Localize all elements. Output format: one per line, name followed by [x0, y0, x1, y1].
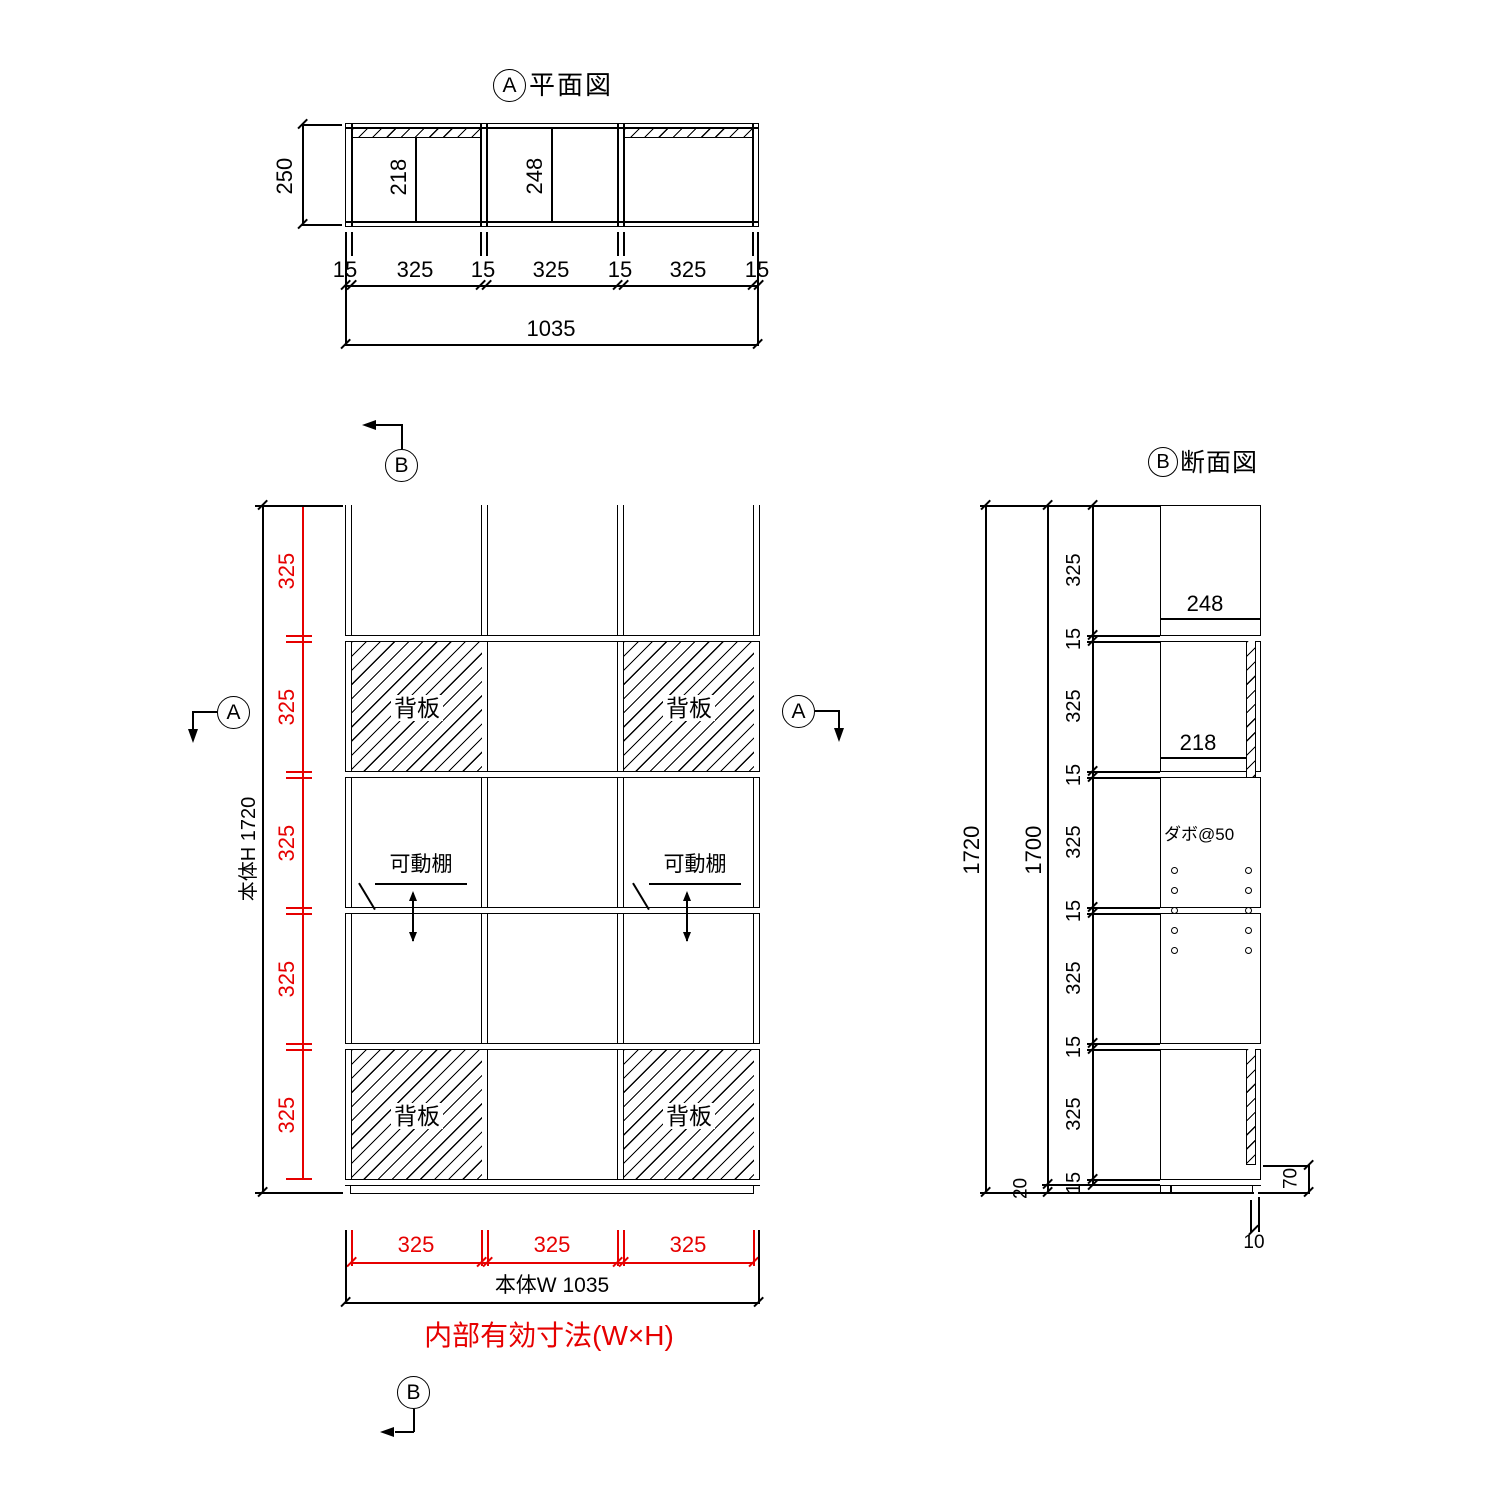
section-dim-218-line [1160, 757, 1246, 759]
front-row-dim: 325 [275, 939, 299, 1019]
plan-ext-line [757, 256, 759, 345]
movable-shelf-label: 可動棚 [650, 853, 740, 877]
section-marker-letter: B [406, 1381, 420, 1405]
front-col-dim-line [351, 1262, 754, 1264]
section-cut-line [838, 710, 840, 728]
plan-total-dim-line [345, 344, 759, 346]
section-chain-dim: 15 [1063, 891, 1085, 931]
plan-view-marker-letter: A [502, 74, 516, 98]
back-panel-label: 背板 [651, 695, 727, 721]
dim-ext-line [980, 505, 1160, 507]
section-marker-letter: A [226, 701, 240, 725]
section-view-title: 断面図 [1180, 449, 1258, 478]
section-cut-arrow-left-icon [380, 1427, 394, 1437]
plan-partition2-line [617, 123, 619, 227]
dim-ext-line [255, 505, 343, 507]
section-cut-line [815, 710, 839, 712]
dim-ext-line [1258, 1197, 1260, 1232]
arrow-down-icon [683, 932, 691, 942]
red-ext-tick [286, 777, 312, 779]
section-chain-dim: 325 [1063, 1074, 1085, 1154]
front-col-dim: 325 [522, 1232, 582, 1257]
section-marker-b-bottom: B [397, 1376, 430, 1409]
plan-partition1-line [480, 123, 482, 227]
section-dim-1700-line [1047, 505, 1049, 1193]
plan-ext-line [480, 232, 482, 256]
front-height-dim-line [262, 505, 264, 1193]
plan-dim-250-line [302, 124, 304, 226]
red-ext-tick [286, 641, 312, 643]
section-marker-a-right: A [782, 695, 815, 728]
section-dim-70: 70 [1282, 1158, 1303, 1198]
plan-ext-line [486, 232, 488, 256]
movable-shelf-label: 可動棚 [376, 853, 466, 877]
section-dim-1720-line [985, 505, 987, 1193]
section-marker-b-top: B [385, 449, 418, 482]
arrow-down-icon [409, 932, 417, 942]
plan-chain-dim: 15 [598, 257, 642, 282]
section-dim-218: 218 [1168, 730, 1228, 755]
back-panel-label: 背板 [651, 1103, 727, 1129]
dowel-hole [1245, 947, 1252, 954]
dim-ext-line [1087, 913, 1160, 915]
dowel-hole [1171, 947, 1178, 954]
section-dim-20: 20 [1012, 1168, 1033, 1208]
plan-right-wall-inner-line [752, 123, 754, 227]
section-bottom-panel [1160, 1179, 1261, 1186]
front-width-dim-line [345, 1302, 759, 1304]
plan-ext-line [345, 256, 347, 345]
plan-ext-line [623, 232, 625, 256]
section-chain-dim: 15 [1063, 1163, 1085, 1203]
front-red-chain-line [302, 505, 304, 1179]
section-dim-1700: 1700 [1022, 800, 1046, 900]
section-chain-dim: 325 [1063, 938, 1085, 1018]
section-cut-line [401, 424, 403, 449]
plan-dim-218: 218 [387, 137, 411, 217]
section-marker-letter: B [394, 454, 408, 478]
red-ext-tick [286, 635, 312, 637]
front-row-dim: 325 [275, 803, 299, 883]
plan-chain-dim: 325 [658, 257, 718, 282]
dowel-hole [1171, 927, 1178, 934]
section-marker-letter: A [791, 700, 805, 724]
red-ext-tick [286, 913, 312, 915]
plan-partition2-line [623, 123, 625, 227]
section-back-panel-hatch [1246, 641, 1256, 777]
front-bottom-panel [345, 1179, 760, 1186]
plan-dim-248: 248 [523, 136, 547, 216]
section-back-panel-hatch [1246, 1049, 1256, 1165]
dowel-hole [1245, 867, 1252, 874]
section-chain-dim: 15 [1063, 619, 1085, 659]
section-chain-line [1092, 505, 1094, 1185]
red-ext-tick [286, 1049, 312, 1051]
section-chain-dim: 325 [1063, 802, 1085, 882]
section-chain-dim: 325 [1063, 530, 1085, 610]
front-row-dim: 325 [275, 1075, 299, 1155]
back-panel-label: 背板 [379, 1103, 455, 1129]
plan-dim-218-line [415, 137, 417, 222]
front-fixed-shelf [345, 635, 760, 642]
section-cut-arrow-left-icon [362, 420, 376, 430]
plan-ext-line [757, 232, 759, 256]
plan-ext-line [345, 232, 347, 256]
plan-chain-dim: 15 [461, 257, 505, 282]
section-chain-dim: 15 [1063, 1027, 1085, 1067]
dim-ext-line [1042, 1184, 1160, 1186]
section-view-marker-letter: B [1156, 451, 1169, 474]
front-base-plinth [350, 1186, 754, 1194]
plan-partition1-line [486, 123, 488, 227]
plan-back-panel-hatch-right [624, 129, 752, 138]
section-chain-dim: 325 [1063, 666, 1085, 746]
dowel-pitch-label: ダボ@50 [1164, 825, 1249, 845]
section-view-marker-circle: B [1148, 447, 1178, 477]
plan-chain-dim-line [345, 285, 759, 287]
plan-ext-line [351, 232, 353, 256]
section-cut-line [193, 711, 217, 713]
section-chain-dim: 15 [1063, 755, 1085, 795]
back-panel-label: 背板 [379, 695, 455, 721]
front-partition-2 [617, 505, 624, 1179]
dim-ext-line [255, 1192, 343, 1194]
arrow-up-icon [409, 891, 417, 901]
front-partition-1 [481, 505, 488, 1179]
arrow-up-icon [683, 891, 691, 901]
section-dim-1720: 1720 [960, 800, 984, 900]
front-fixed-shelf [345, 771, 760, 778]
section-cut-arrow-down-icon [188, 729, 198, 743]
dim-ext-line [758, 1230, 760, 1304]
front-col-dim: 325 [386, 1232, 446, 1257]
dowel-hole [1171, 887, 1178, 894]
plan-dim-248-line [551, 127, 553, 222]
dim-ext-line [345, 1230, 347, 1304]
front-col-dim: 325 [658, 1232, 718, 1257]
red-ext-tick [286, 771, 312, 773]
cad-drawing-canvas: A 平面図 218 248 250 15 325 15 325 15 325 1… [0, 0, 1500, 1500]
red-ext-tick [286, 907, 312, 909]
red-ext-tick [286, 1178, 312, 1180]
dowel-hole [1245, 907, 1252, 914]
section-dim-248: 248 [1175, 591, 1235, 616]
plan-ext-line [617, 232, 619, 256]
interior-dimension-caption: 内部有効寸法(W×H) [389, 1320, 709, 1352]
plan-dim-1035: 1035 [511, 316, 591, 341]
plan-dim-ext-line [302, 224, 342, 226]
dim-ext-line [1250, 1200, 1252, 1232]
front-row-dim: 325 [275, 667, 299, 747]
front-fixed-shelf [345, 1043, 760, 1050]
red-ext-tick [286, 1043, 312, 1045]
section-cut-line [413, 1409, 415, 1432]
plan-chain-dim: 325 [521, 257, 581, 282]
leader-line [649, 883, 741, 885]
plan-ext-line [752, 232, 754, 256]
plan-view-marker-circle: A [493, 69, 526, 102]
plan-dim-ext-line [302, 124, 342, 126]
plan-dim-250: 250 [273, 136, 297, 216]
section-marker-a-left: A [217, 696, 250, 729]
dim-ext-line [1087, 777, 1160, 779]
section-cut-line [376, 424, 402, 426]
leader-line [375, 883, 467, 885]
front-movable-shelf [345, 907, 760, 914]
front-width-dim: 本体W 1035 [462, 1274, 642, 1298]
front-side-panel-left [345, 505, 352, 1179]
section-dim-10: 10 [1234, 1232, 1274, 1254]
dim-ext-line [1087, 641, 1160, 643]
section-cut-arrow-down-icon [834, 728, 844, 742]
plan-view-title: 平面図 [529, 71, 613, 101]
dowel-hole [1171, 907, 1178, 914]
section-dim-248-line [1160, 618, 1260, 620]
front-height-dim: 本体H 1720 [238, 774, 260, 924]
plan-left-wall-inner-line [351, 123, 353, 227]
front-row-dim: 325 [275, 531, 299, 611]
dim-ext-line [1087, 1049, 1160, 1051]
plan-chain-dim: 325 [385, 257, 445, 282]
section-cut-line [192, 711, 194, 729]
dowel-hole [1245, 887, 1252, 894]
front-side-panel-right [753, 505, 760, 1179]
dowel-hole [1245, 927, 1252, 934]
section-cut-line [395, 1431, 414, 1433]
dowel-hole [1171, 867, 1178, 874]
